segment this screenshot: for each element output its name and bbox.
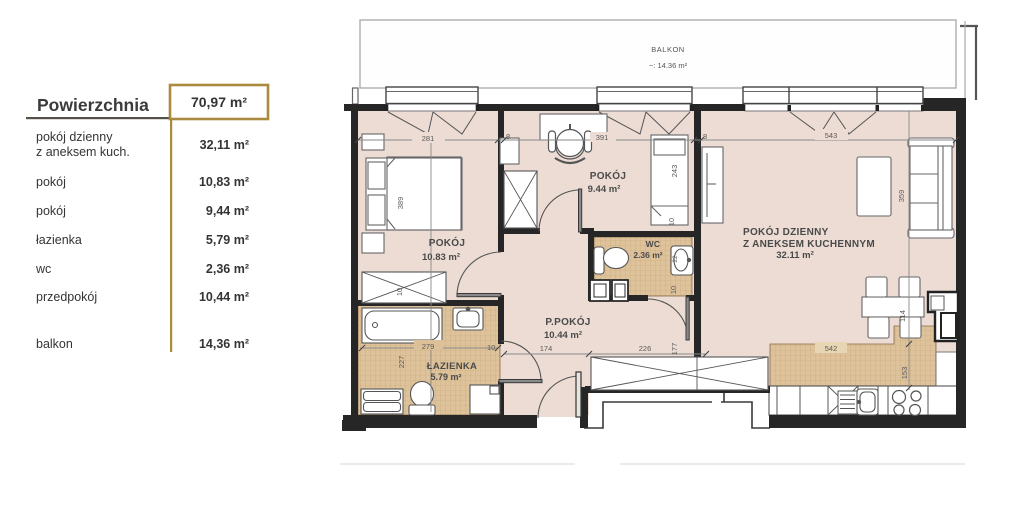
svg-text:5.79 m²: 5.79 m²	[430, 372, 461, 382]
svg-text:70,97 m²: 70,97 m²	[191, 94, 247, 110]
svg-text:226: 226	[639, 344, 652, 353]
svg-text:10,83 m²: 10,83 m²	[199, 175, 249, 189]
svg-text:227: 227	[397, 356, 406, 369]
svg-text:10.83 m²: 10.83 m²	[422, 252, 460, 263]
svg-text:243: 243	[670, 165, 679, 178]
svg-text:WC: WC	[646, 239, 661, 249]
svg-text:5,79 m²: 5,79 m²	[206, 233, 249, 247]
svg-text:32.11 m²: 32.11 m²	[776, 250, 814, 261]
svg-text:281: 281	[422, 134, 435, 143]
svg-text:~: 14.36 m²: ~: 14.36 m²	[649, 61, 688, 70]
svg-text:POKÓJ DZIENNY: POKÓJ DZIENNY	[743, 225, 829, 238]
svg-text:22: 22	[672, 255, 679, 263]
svg-text:2.36 m²: 2.36 m²	[633, 250, 662, 260]
svg-text:łazienka: łazienka	[36, 233, 82, 247]
svg-text:389: 389	[396, 197, 405, 210]
svg-text:174: 174	[540, 344, 553, 353]
svg-text:ŁAZIENKA: ŁAZIENKA	[427, 361, 477, 372]
svg-text:balkon: balkon	[36, 337, 73, 351]
svg-text:2,36 m²: 2,36 m²	[206, 262, 249, 276]
svg-text:279: 279	[422, 342, 435, 351]
svg-text:z aneksem kuch.: z aneksem kuch.	[36, 145, 130, 159]
svg-text:10.44 m²: 10.44 m²	[544, 330, 582, 341]
svg-text:391: 391	[596, 133, 609, 142]
svg-text:POKÓJ: POKÓJ	[590, 169, 627, 182]
svg-text:542: 542	[825, 344, 838, 353]
svg-text:P.POKÓJ: P.POKÓJ	[545, 315, 590, 328]
svg-text:177: 177	[670, 343, 679, 356]
svg-text:153: 153	[900, 367, 909, 380]
svg-text:Z ANEKSEM KUCHENNYM: Z ANEKSEM KUCHENNYM	[743, 239, 875, 250]
svg-text:pokój dzienny: pokój dzienny	[36, 130, 113, 144]
svg-text:9.44 m²: 9.44 m²	[588, 184, 621, 195]
svg-text:10: 10	[487, 343, 495, 352]
svg-text:POKÓJ: POKÓJ	[429, 236, 466, 249]
svg-text:14,36 m²: 14,36 m²	[199, 337, 249, 351]
svg-text:pokój: pokój	[36, 175, 66, 189]
svg-text:Powierzchnia: Powierzchnia	[37, 95, 149, 115]
svg-text:10: 10	[667, 218, 676, 226]
svg-text:9,44 m²: 9,44 m²	[206, 204, 249, 218]
svg-text:359: 359	[897, 190, 906, 203]
svg-text:8: 8	[506, 132, 510, 141]
svg-text:32,11 m²: 32,11 m²	[200, 138, 249, 152]
svg-text:543: 543	[825, 131, 838, 140]
svg-text:114: 114	[898, 310, 907, 322]
svg-text:pokój: pokój	[36, 204, 66, 218]
svg-text:10,44 m²: 10,44 m²	[199, 290, 249, 304]
svg-text:10: 10	[669, 286, 678, 294]
svg-text:wc: wc	[35, 262, 51, 276]
svg-text:8: 8	[703, 132, 707, 141]
svg-text:10: 10	[395, 288, 404, 296]
svg-text:przedpokój: przedpokój	[36, 290, 97, 304]
svg-text:BALKON: BALKON	[651, 45, 684, 54]
